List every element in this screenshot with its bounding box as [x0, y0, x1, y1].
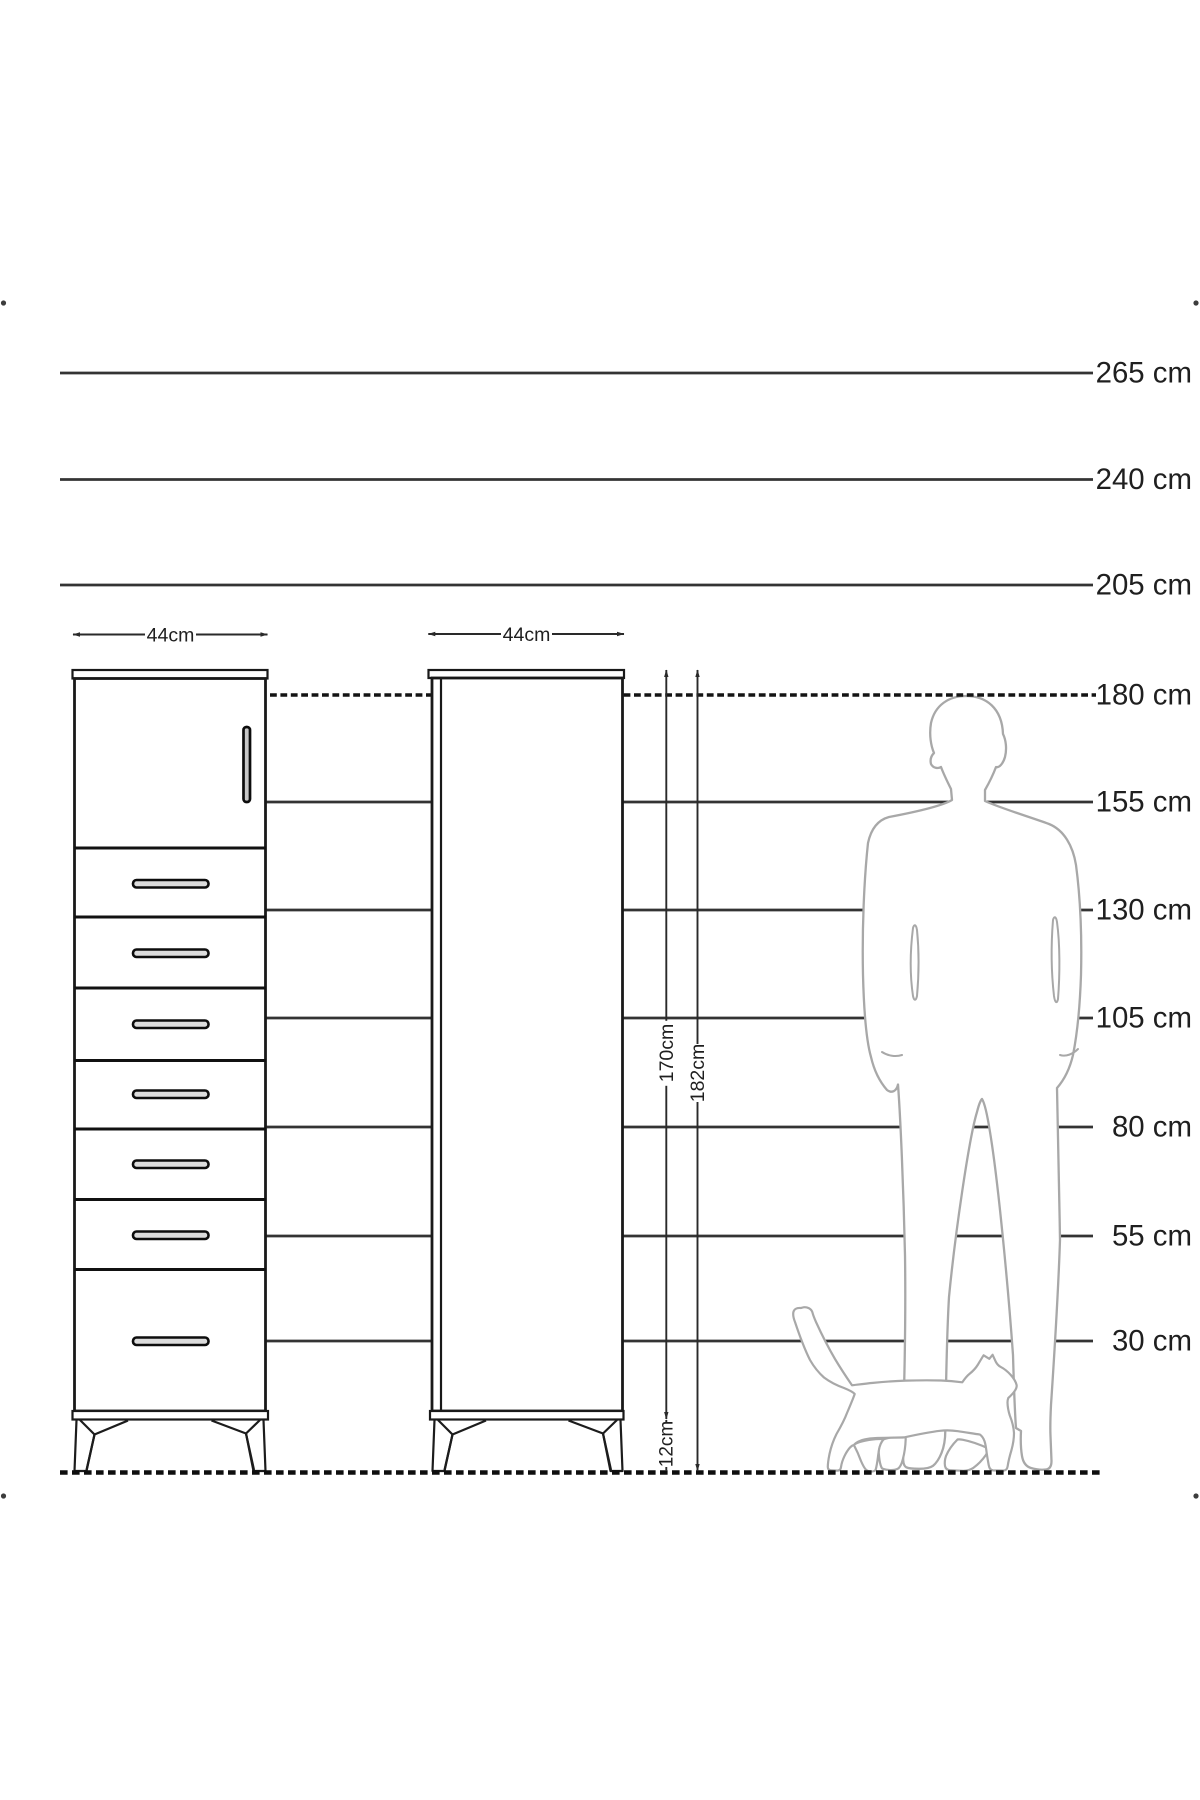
svg-text:105 cm: 105 cm	[1096, 1002, 1192, 1035]
svg-text:265 cm: 265 cm	[1096, 357, 1192, 390]
svg-text:44cm: 44cm	[147, 625, 195, 647]
svg-text:44cm: 44cm	[503, 624, 551, 646]
svg-text:182cm: 182cm	[687, 1044, 709, 1103]
svg-text:130 cm: 130 cm	[1096, 894, 1192, 927]
svg-text:240 cm: 240 cm	[1096, 463, 1192, 496]
svg-text:55 cm: 55 cm	[1112, 1220, 1192, 1253]
svg-text:180 cm: 180 cm	[1096, 679, 1192, 712]
svg-text:155 cm: 155 cm	[1096, 786, 1192, 819]
svg-text:205 cm: 205 cm	[1096, 569, 1192, 602]
svg-text:12cm: 12cm	[657, 1421, 678, 1467]
svg-text:30 cm: 30 cm	[1112, 1325, 1192, 1358]
svg-text:80 cm: 80 cm	[1112, 1111, 1192, 1144]
svg-text:170cm: 170cm	[656, 1024, 678, 1083]
